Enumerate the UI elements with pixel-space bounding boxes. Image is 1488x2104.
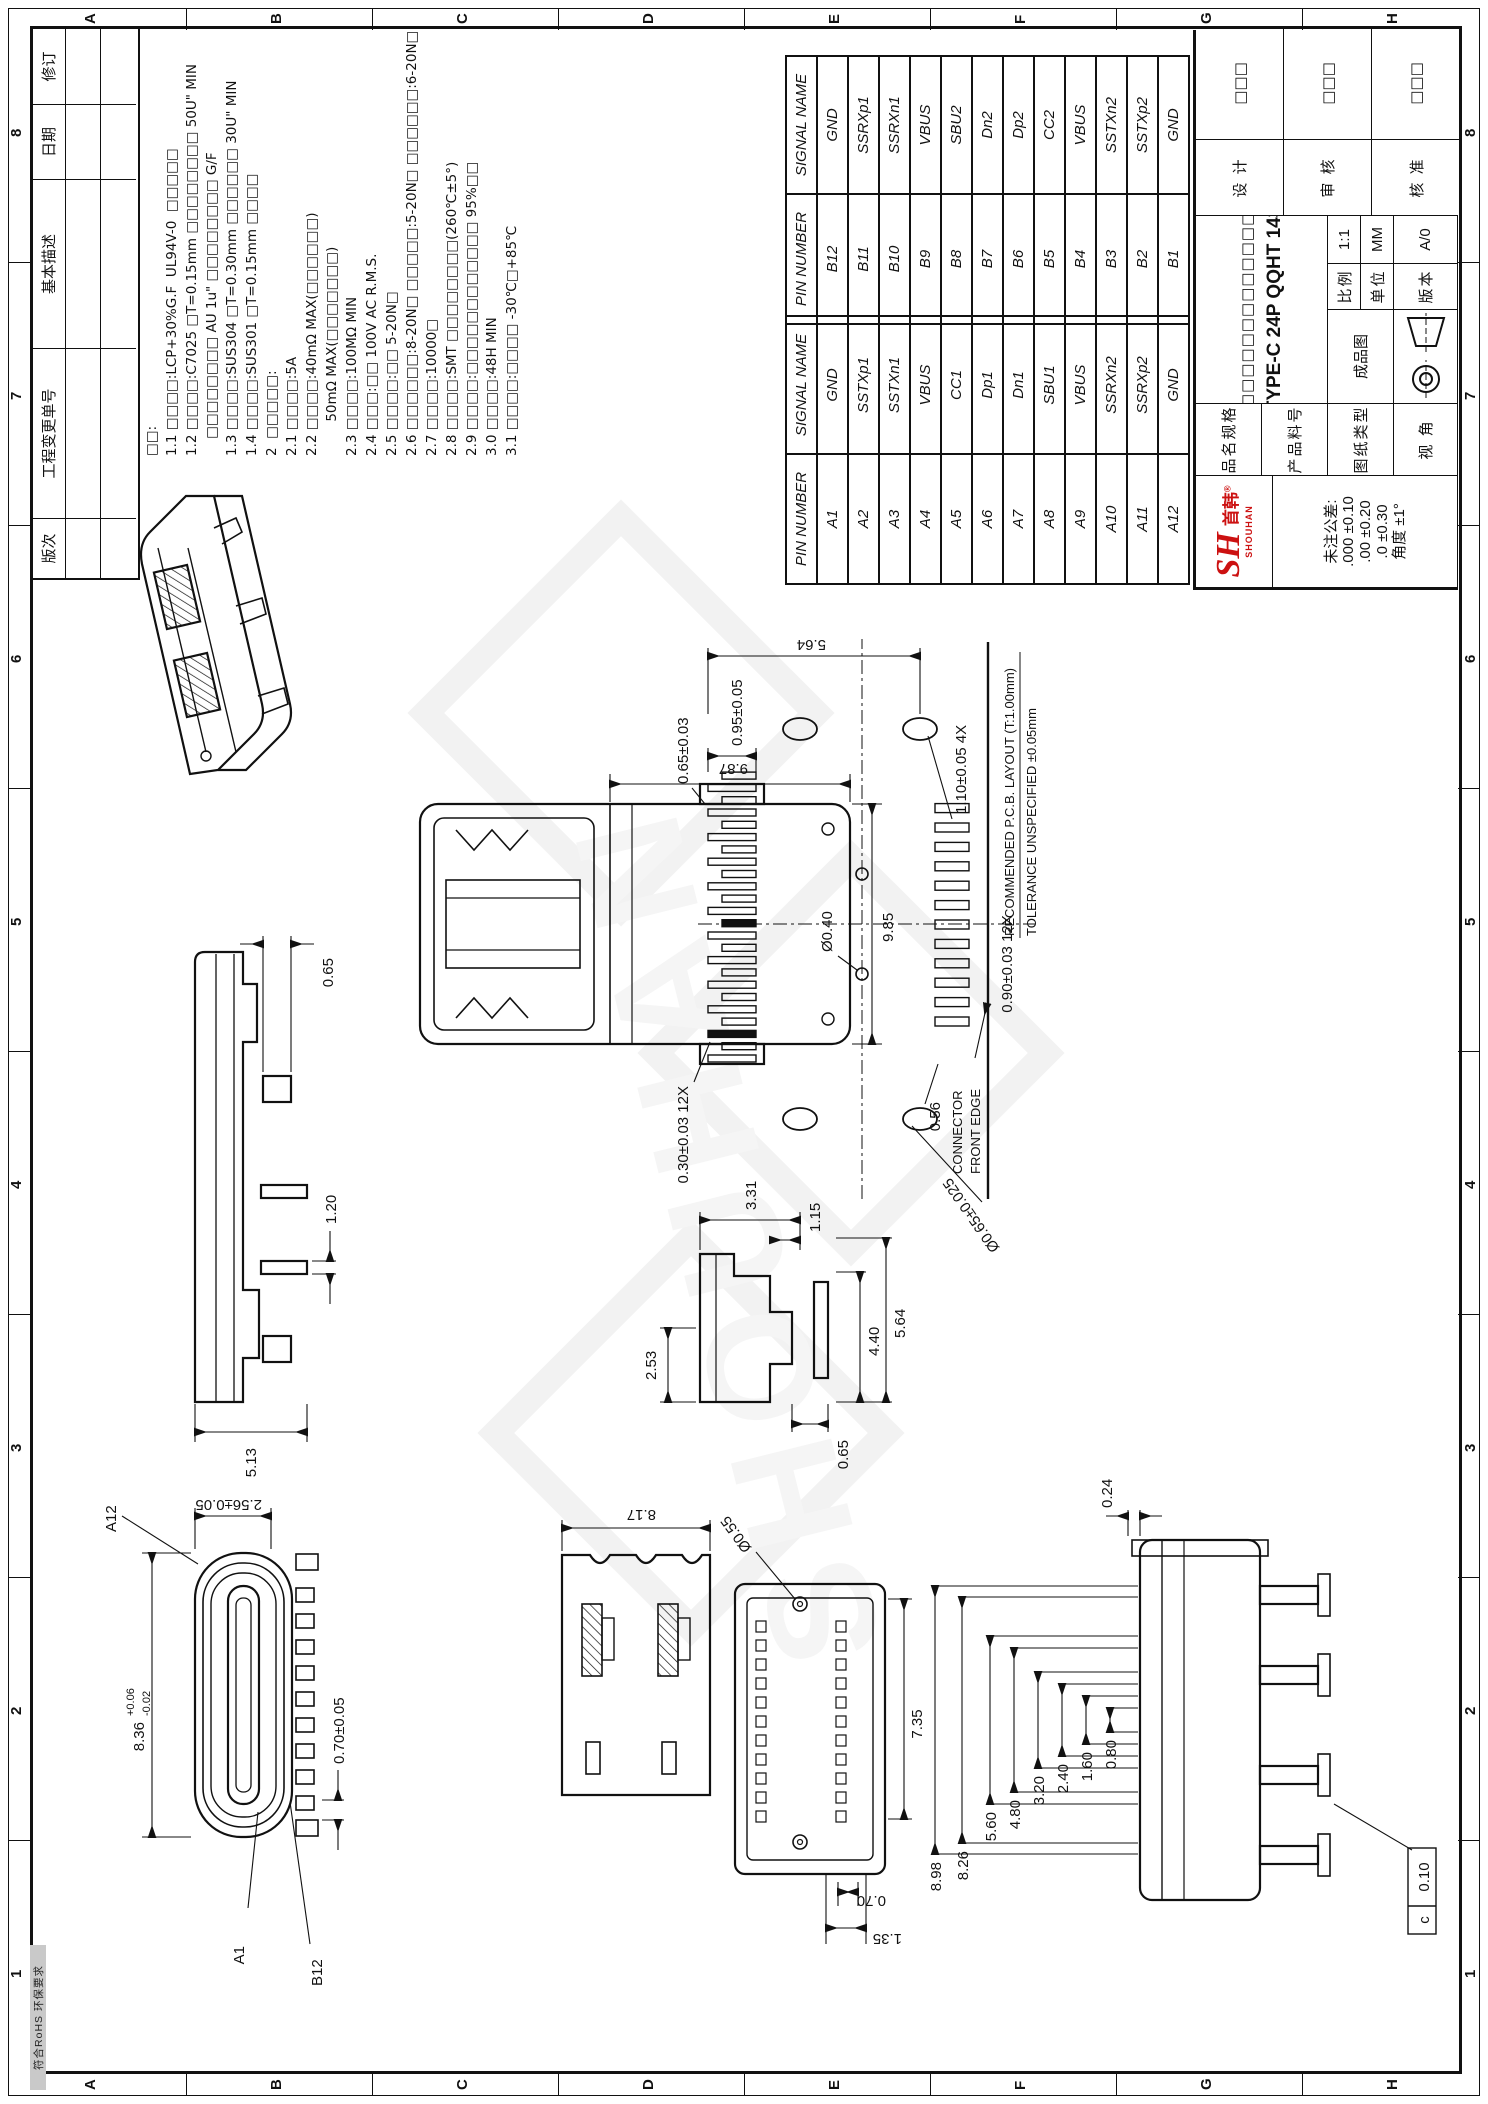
pad <box>756 1716 766 1727</box>
dim-0-56: 0.56 <box>927 1102 944 1131</box>
dim-oval-holes: 1.10±0.05 4X <box>953 725 970 814</box>
pcb-layout-view: 0.65±0.03 0.30±0.03 12X 0.95±0.05 5.64 0… <box>675 636 1039 1255</box>
screenshot-viewport: SHOUHAN 1122334455667788AABBCCDDEEFFGGHH… <box>0 0 1488 2104</box>
pad <box>722 969 756 976</box>
pad <box>708 834 756 841</box>
pad <box>935 842 969 851</box>
dim-8-98: 8.98 <box>928 1862 945 1891</box>
pad <box>935 1017 969 1026</box>
side2-view: 0.24 8.98 8.26 5.60 4.80 3.20 2.40 1.60 … <box>928 1479 1436 1934</box>
drawing-views: 5.13 1.20 0.65 9.85 <box>0 0 1488 2104</box>
pad <box>935 901 969 910</box>
dim-2-56: 2.56±0.05 <box>195 1496 262 1513</box>
dim-4-40: 4.40 <box>866 1327 883 1356</box>
pad <box>836 1640 846 1651</box>
dim-oval-dia: Ø0.65±0.025 <box>940 1175 1004 1256</box>
dim-5-13: 5.13 <box>243 1448 260 1477</box>
pin-label-a12: A12 <box>103 1505 120 1532</box>
dim-0-55-dia: Ø0.55 <box>717 1513 755 1556</box>
pad <box>296 1770 314 1784</box>
pcb-front-edge-label-1: CONNECTOR <box>950 1090 965 1174</box>
pcb-title-1: RECOMMENDED P.C.B. LAYOUT (T:1.00mm) <box>1002 668 1017 936</box>
dim-hole-dia: Ø0.40 <box>819 911 836 952</box>
dim-pad-width: 0.65±0.03 <box>675 717 692 784</box>
pad <box>756 1697 766 1708</box>
pad <box>708 1030 756 1037</box>
dim-2-53: 2.53 <box>643 1351 660 1380</box>
pad <box>296 1588 314 1602</box>
pad <box>722 1018 756 1025</box>
pad <box>935 998 969 1007</box>
pad <box>935 978 969 987</box>
dim-0-65: 0.65 <box>835 1440 852 1469</box>
dim-1-20: 1.20 <box>323 1195 340 1224</box>
pad <box>836 1621 846 1632</box>
pad <box>296 1554 318 1570</box>
dim-4-80: 4.80 <box>1007 1800 1024 1829</box>
pad <box>756 1811 766 1822</box>
dim-8-17: 8.17 <box>627 1506 656 1523</box>
dim-5-60: 5.60 <box>983 1812 1000 1841</box>
profile-view: 2.53 3.31 1.15 0.65 4.40 5.64 <box>643 1181 909 1469</box>
pad <box>708 932 756 939</box>
pad <box>756 1792 766 1803</box>
dim-9-87: 9.87 <box>719 760 748 777</box>
datum-c: c <box>1416 1916 1433 1924</box>
iso-view <box>141 496 291 774</box>
pad <box>756 1640 766 1651</box>
pad <box>836 1716 846 1727</box>
pad <box>296 1666 314 1680</box>
dim-1-15: 1.15 <box>807 1203 824 1232</box>
pin-label-b12: B12 <box>309 1959 326 1986</box>
pad <box>836 1697 846 1708</box>
dim-7-35: 7.35 <box>909 1709 926 1738</box>
dim-2-40: 2.40 <box>1055 1764 1072 1793</box>
pad <box>935 959 969 968</box>
dim-1-35: 1.35 <box>873 1930 902 1947</box>
bottom-view: 7.35 Ø0.55 0.70 1.35 <box>717 1513 926 1947</box>
pad <box>708 981 756 988</box>
flatness-0-10: 0.10 <box>1416 1862 1433 1891</box>
pad <box>296 1718 314 1732</box>
dim-0-24: 0.24 <box>1099 1479 1116 1508</box>
dim-9-85: 9.85 <box>880 913 897 942</box>
pad <box>722 994 756 1001</box>
pad <box>935 823 969 832</box>
pad <box>708 883 756 890</box>
pad <box>756 1621 766 1632</box>
pad <box>296 1614 314 1628</box>
pad <box>756 1754 766 1765</box>
pad <box>708 907 756 914</box>
pad <box>722 944 756 951</box>
dim-8-36-tol-plus: +0.06 <box>125 1688 137 1716</box>
pad <box>722 797 756 804</box>
pad <box>296 1796 314 1810</box>
dim-8-36: 8.36 <box>131 1722 148 1751</box>
pcb-title-2: TOLERANCE UNSPECIFIED ±0.05mm <box>1024 708 1039 936</box>
pad <box>296 1640 314 1654</box>
pad <box>836 1811 846 1822</box>
front-view: 8.36 +0.06 -0.02 2.56±0.05 0.70±0.05 A12… <box>103 1496 348 1986</box>
pad <box>756 1735 766 1746</box>
dim-8-26: 8.26 <box>955 1851 972 1880</box>
dim-3-20: 3.20 <box>1031 1776 1048 1805</box>
pad <box>722 895 756 902</box>
side-view: 5.13 1.20 0.65 <box>195 936 340 1477</box>
dim-pad-pitch: 0.30±0.03 12X <box>675 1086 692 1183</box>
pad <box>836 1678 846 1689</box>
pad <box>708 1006 756 1013</box>
pad <box>296 1820 318 1836</box>
dim-3-31: 3.31 <box>743 1181 760 1210</box>
dim-0-70b: 0.70 <box>857 1892 886 1909</box>
pad <box>708 784 756 791</box>
pad <box>722 871 756 878</box>
pad <box>836 1735 846 1746</box>
dim-1-60: 1.60 <box>1079 1752 1096 1781</box>
pad <box>935 862 969 871</box>
dim-0-80: 0.80 <box>1103 1740 1120 1769</box>
pad <box>708 957 756 964</box>
dim-0-65: 0.65 <box>320 958 337 987</box>
pad <box>756 1773 766 1784</box>
pad <box>296 1692 314 1706</box>
drawing-sheet: SHOUHAN 1122334455667788AABBCCDDEEFFGGHH… <box>0 0 1488 2104</box>
dim-5-64: 5.64 <box>892 1309 909 1338</box>
pad <box>708 858 756 865</box>
pad <box>722 821 756 828</box>
pcb-front-edge-label-2: FRONT EDGE <box>968 1089 983 1174</box>
dim-8-36-tol-minus: -0.02 <box>141 1691 153 1716</box>
pad <box>722 920 756 927</box>
pad <box>836 1754 846 1765</box>
pad <box>836 1773 846 1784</box>
pad <box>296 1744 314 1758</box>
dim-5-64-pcb: 5.64 <box>797 636 826 653</box>
pin-label-a1: A1 <box>231 1946 248 1964</box>
pad <box>836 1792 846 1803</box>
pad <box>722 846 756 853</box>
pad <box>756 1659 766 1670</box>
pad <box>708 1055 756 1062</box>
pad <box>836 1659 846 1670</box>
pad <box>935 881 969 890</box>
dim-pad-length: 0.95±0.05 <box>729 679 746 746</box>
pad <box>935 939 969 948</box>
pad <box>756 1678 766 1689</box>
pad <box>708 809 756 816</box>
clips-view: 8.17 <box>562 1506 710 1795</box>
dim-0-70: 0.70±0.05 <box>331 1697 348 1764</box>
